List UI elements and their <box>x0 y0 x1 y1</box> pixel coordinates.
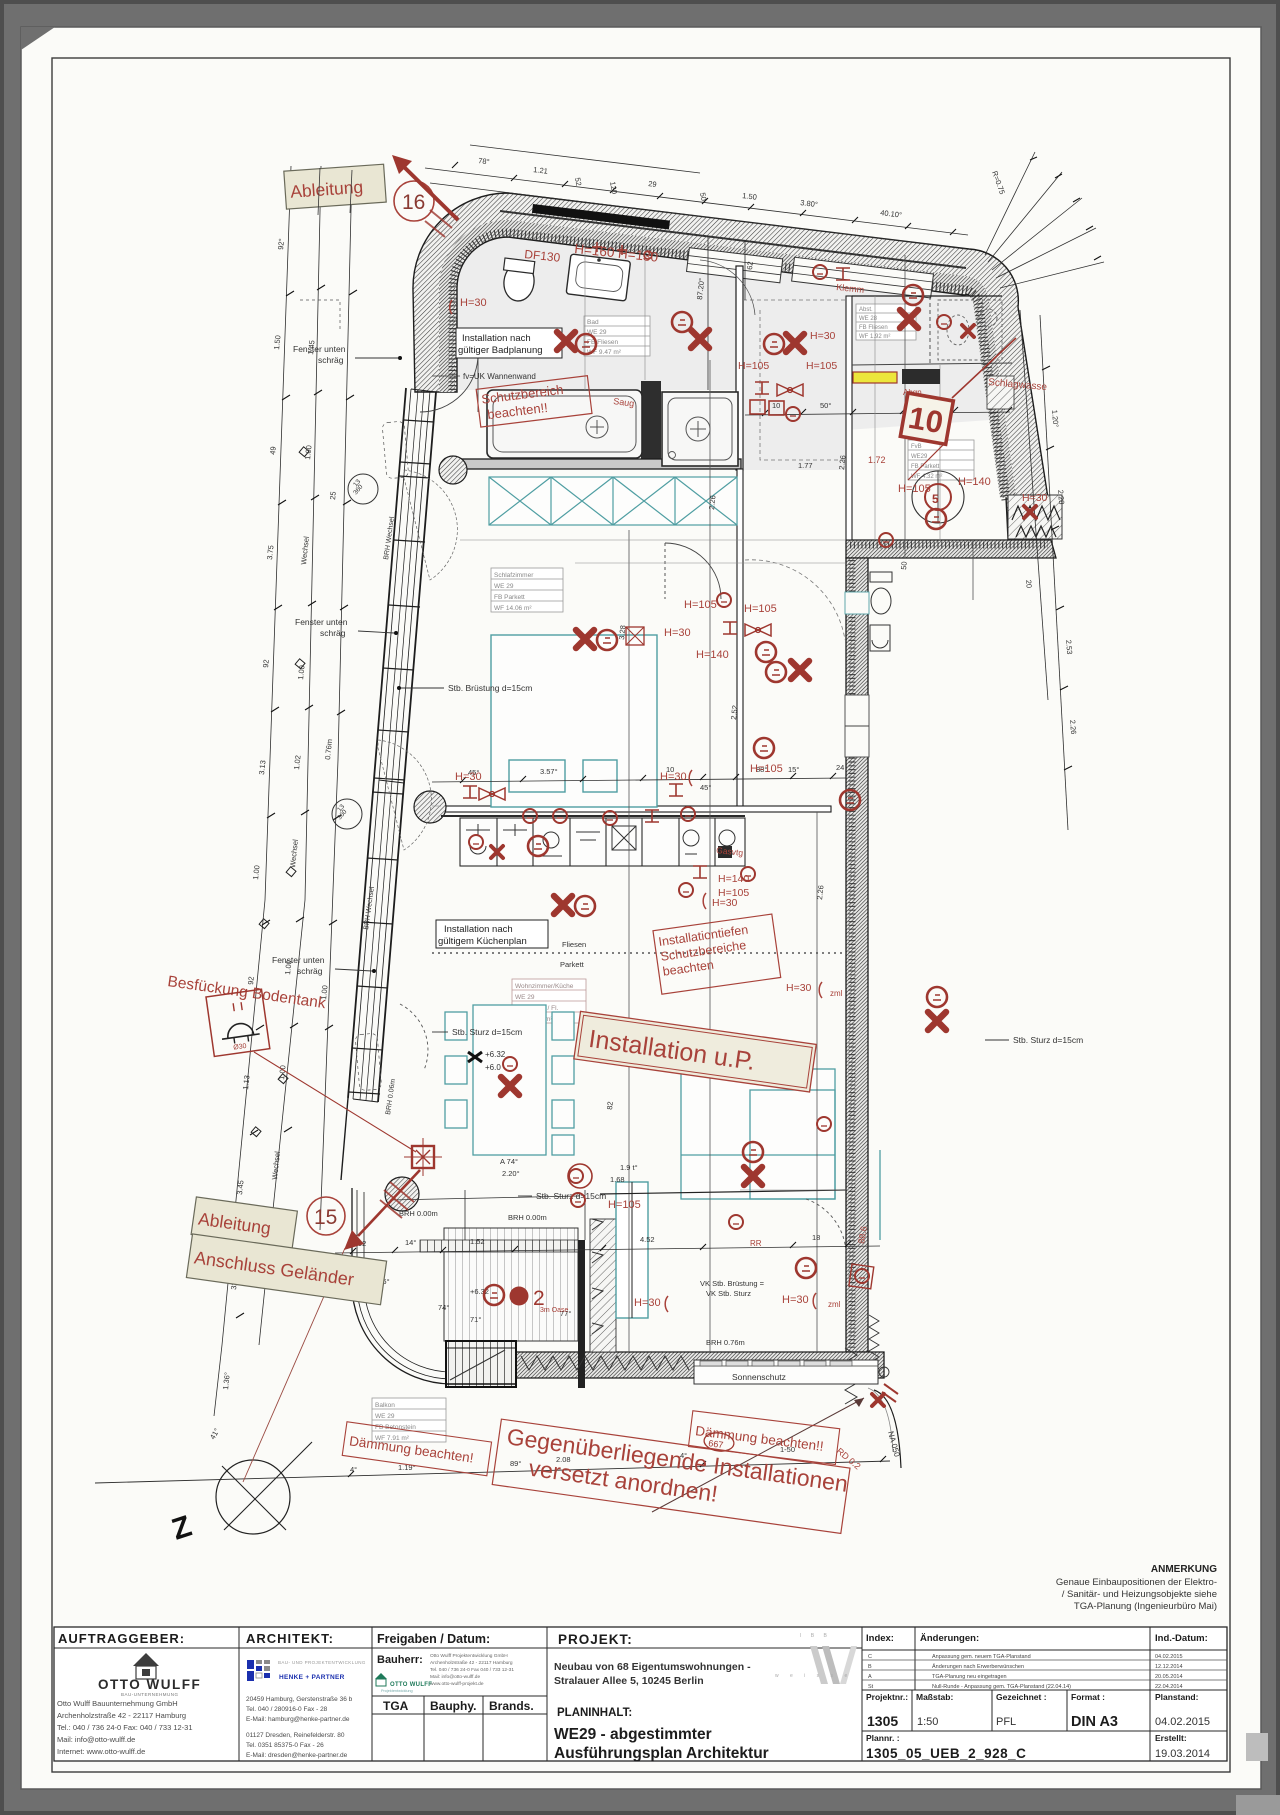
svg-text:20459 Hamburg, Gerstenstraße 3: 20459 Hamburg, Gerstenstraße 36 b <box>246 1696 353 1703</box>
svg-text:78°: 78° <box>478 156 490 166</box>
svg-text:Bauherr:: Bauherr: <box>377 1654 423 1666</box>
svg-text:1.21: 1.21 <box>533 165 549 176</box>
svg-text:2.28: 2.28 <box>1056 489 1066 504</box>
svg-text:H=105: H=105 <box>898 483 931 495</box>
svg-text:1.50: 1.50 <box>272 335 282 350</box>
svg-text:3.45: 3.45 <box>235 1180 245 1195</box>
svg-text:Neubau von 68 Eigentumswohnung: Neubau von 68 Eigentumswohnungen - <box>554 1661 751 1673</box>
svg-text:Balkon: Balkon <box>375 1402 395 1409</box>
svg-text:FB Fliesen: FB Fliesen <box>587 339 618 346</box>
svg-text:1:50: 1:50 <box>917 1716 938 1728</box>
svg-text:24: 24 <box>836 763 844 772</box>
svg-text:Planstand:: Planstand: <box>1155 1692 1199 1702</box>
svg-text:PROJEKT:: PROJEKT: <box>558 1632 633 1647</box>
svg-text:1.68: 1.68 <box>610 1175 625 1184</box>
svg-text:ARCHITEKT:: ARCHITEKT: <box>246 1631 334 1646</box>
svg-text:BAU-UNTERNEHMUNG: BAU-UNTERNEHMUNG <box>121 1692 179 1697</box>
svg-text:gültigem Küchenplan: gültigem Küchenplan <box>438 936 527 947</box>
svg-text:H=105: H=105 <box>684 599 717 611</box>
svg-text:TGA-Planung neu eingetragen: TGA-Planung neu eingetragen <box>932 1674 1007 1680</box>
svg-text:H=30: H=30 <box>782 1294 809 1306</box>
svg-text:Index:: Index: <box>866 1633 894 1644</box>
svg-text:Maßstab:: Maßstab: <box>916 1692 953 1702</box>
svg-text:1.45: 1.45 <box>306 340 316 355</box>
svg-text:Erstellt:: Erstellt: <box>1155 1733 1187 1743</box>
svg-text:DIN A3: DIN A3 <box>1071 1714 1118 1730</box>
svg-text:WE29 - abgestimmter: WE29 - abgestimmter <box>554 1726 712 1743</box>
svg-text:H=30: H=30 <box>712 897 738 909</box>
svg-text:RR: RR <box>750 1239 762 1248</box>
svg-text:HENKE + PARTNER: HENKE + PARTNER <box>279 1674 345 1681</box>
svg-text:VK Stb. Sturz: VK Stb. Sturz <box>706 1289 751 1298</box>
svg-text:gültiger Badplanung: gültiger Badplanung <box>458 345 543 356</box>
svg-text:zml: zml <box>830 989 843 998</box>
svg-text:Änderungen:: Änderungen: <box>920 1633 979 1644</box>
svg-text:29: 29 <box>648 179 657 189</box>
svg-text:I B B: I B B <box>800 1633 831 1639</box>
svg-text:Schlafzimmer: Schlafzimmer <box>494 572 534 579</box>
svg-text:Ind.-Datum:: Ind.-Datum: <box>1155 1633 1208 1644</box>
svg-text:10: 10 <box>772 401 780 410</box>
svg-text:OTTO WULFF: OTTO WULFF <box>98 1677 201 1692</box>
svg-text:w e i s s e: w e i s s e <box>775 1673 852 1679</box>
svg-text:10: 10 <box>906 400 946 440</box>
svg-text:15°: 15° <box>788 765 799 774</box>
svg-text:Tel. 0351 85375-0 Fax - 26: Tel. 0351 85375-0 Fax - 26 <box>246 1742 324 1749</box>
svg-text:FB Fliesen: FB Fliesen <box>859 325 888 331</box>
svg-text:50°: 50° <box>820 401 831 410</box>
svg-text:E-Mail: hamburg@henke-partner.: E-Mail: hamburg@henke-partner.de <box>246 1716 350 1723</box>
svg-text:2.26: 2.26 <box>1068 719 1078 734</box>
svg-text:+6.32: +6.32 <box>485 1050 506 1059</box>
svg-text:3.57°: 3.57° <box>540 767 558 776</box>
svg-text:Sonnenschutz: Sonnenschutz <box>732 1372 786 1382</box>
svg-text:52: 52 <box>573 177 583 187</box>
svg-text:Tel. 040 / 280916-0 Fax - 28: Tel. 040 / 280916-0 Fax - 28 <box>246 1706 328 1713</box>
svg-text:Genaue Einbaupositionen der El: Genaue Einbaupositionen der Elektro- <box>1056 1577 1217 1588</box>
svg-text:25: 25 <box>328 491 338 500</box>
svg-text:62: 62 <box>745 261 755 270</box>
svg-text:1305: 1305 <box>867 1713 898 1729</box>
svg-text:H=105: H=105 <box>750 763 783 775</box>
svg-text:3.75: 3.75 <box>265 545 275 560</box>
svg-text:Otto Wulff Bauunternehmung Gmb: Otto Wulff Bauunternehmung GmbH <box>57 1699 178 1708</box>
svg-text:+6.0: +6.0 <box>485 1063 501 1072</box>
svg-text:Mail: info@otto-wulff.de: Mail: info@otto-wulff.de <box>57 1735 135 1744</box>
svg-text:20.05.2014: 20.05.2014 <box>1155 1674 1183 1680</box>
svg-text:H=30: H=30 <box>786 982 812 994</box>
svg-text:H=105: H=105 <box>608 1199 641 1211</box>
svg-text:Archenholzstraße 42 - 22117: Archenholzstraße 42 - 22117 Hamburg <box>57 1711 186 1720</box>
svg-text:PLANINHALT:: PLANINHALT: <box>557 1707 632 1719</box>
svg-text:H=105: H=105 <box>738 360 769 372</box>
svg-text:schräg: schräg <box>318 355 344 365</box>
svg-text:04.02.2015: 04.02.2015 <box>1155 1654 1183 1660</box>
svg-text:04.02.2015: 04.02.2015 <box>1155 1716 1210 1728</box>
svg-text:Tel. 040 / 736 24-0 Fax 040 /: Tel. 040 / 736 24-0 Fax 040 / 733 12-31 <box>430 1667 514 1673</box>
svg-text:WE 29: WE 29 <box>494 583 514 590</box>
svg-text:5: 5 <box>932 492 939 506</box>
svg-text:St: St <box>868 1684 874 1690</box>
svg-text:Stb. Sturz d=15cm: Stb. Sturz d=15cm <box>452 1027 522 1037</box>
svg-text:15: 15 <box>314 1206 337 1229</box>
svg-text:BRH 0.76m: BRH 0.76m <box>706 1338 745 1347</box>
svg-text:50: 50 <box>698 192 708 202</box>
svg-text:E-Mail: dresden@henke-partner.: E-Mail: dresden@henke-partner.de <box>246 1752 348 1759</box>
svg-text:H=105: H=105 <box>806 360 837 372</box>
svg-text:BRH 0.00m: BRH 0.00m <box>508 1213 547 1222</box>
svg-text:2.26: 2.26 <box>837 455 847 470</box>
svg-text:1.13: 1.13 <box>241 1075 251 1090</box>
svg-text:H=30: H=30 <box>634 1297 661 1309</box>
svg-text:01127 Dresden, Reinefelderstr.: 01127 Dresden, Reinefelderstr. 80 <box>246 1732 345 1739</box>
svg-text:1.00: 1.00 <box>283 960 293 975</box>
svg-text:82: 82 <box>605 1101 615 1110</box>
svg-text:1.02: 1.02 <box>292 755 302 770</box>
svg-text:Abst.: Abst. <box>859 307 873 313</box>
svg-text:Mail: info@otto-wulff.de: Mail: info@otto-wulff.de <box>430 1674 480 1680</box>
svg-text:TGA: TGA <box>383 1699 409 1713</box>
svg-text:1.9 t°: 1.9 t° <box>620 1163 638 1172</box>
svg-text:Gezeichnet :: Gezeichnet : <box>996 1692 1047 1702</box>
svg-text:1.50: 1.50 <box>742 191 758 202</box>
svg-text:BRH 0.00m: BRH 0.00m <box>399 1209 438 1218</box>
svg-text:Ausführungsplan Architektur: Ausführungsplan Architektur <box>554 1745 769 1762</box>
svg-text:H=30: H=30 <box>1022 492 1048 504</box>
svg-text:2.20°: 2.20° <box>502 1169 520 1178</box>
svg-text:Projektnr.:: Projektnr.: <box>866 1692 908 1702</box>
svg-text:H=30: H=30 <box>460 297 487 309</box>
svg-text:Fenster unten: Fenster unten <box>295 617 348 627</box>
svg-text:71°: 71° <box>470 1315 481 1324</box>
svg-text:Archenholzstraße 42 - 22117: Archenholzstraße 42 - 22117 Hamburg <box>430 1660 513 1666</box>
svg-text:schräg: schräg <box>297 966 323 976</box>
svg-text:Null-Runde - Anpassung gem. TG: Null-Runde - Anpassung gem. TGA-Planstan… <box>932 1684 1071 1690</box>
svg-text:H=140: H=140 <box>696 649 729 661</box>
svg-text:3.13: 3.13 <box>257 760 267 775</box>
svg-text:H=140: H=140 <box>718 873 749 885</box>
svg-text:Installation nach: Installation nach <box>462 333 531 344</box>
svg-text:1.20°: 1.20° <box>1050 409 1061 427</box>
svg-text:WF 14.06 m²: WF 14.06 m² <box>494 605 532 612</box>
svg-text:20: 20 <box>1024 579 1034 588</box>
svg-text:74°: 74° <box>438 1303 449 1312</box>
svg-text:Installation nach: Installation nach <box>444 924 513 935</box>
svg-text:BAU- UND PROJEKTENTWICKLUNG: BAU- UND PROJEKTENTWICKLUNG <box>278 1660 366 1665</box>
svg-text:49: 49 <box>268 446 278 455</box>
svg-text:2.52: 2.52 <box>729 705 739 720</box>
svg-text:Projektentwicklung: Projektentwicklung <box>381 1689 413 1693</box>
svg-text:2.26: 2.26 <box>707 495 717 510</box>
svg-text:Plannr. :: Plannr. : <box>866 1733 900 1743</box>
svg-text:C: C <box>868 1654 872 1660</box>
svg-text:H=30: H=30 <box>664 627 691 639</box>
svg-text:zml: zml <box>828 1300 841 1309</box>
svg-text:fv=UK Wannenwand: fv=UK Wannenwand <box>463 372 536 381</box>
svg-text:Änderungen nach Erwerberwünsch: Änderungen nach Erwerberwünschen <box>932 1663 1024 1670</box>
svg-text:H=140: H=140 <box>958 476 991 488</box>
svg-text:1.72: 1.72 <box>868 455 886 465</box>
svg-text:50: 50 <box>899 561 909 570</box>
svg-text:Freigaben / Datum:: Freigaben / Datum: <box>377 1632 490 1646</box>
svg-text:OTTO WULFF: OTTO WULFF <box>390 1682 432 1688</box>
svg-text:89°: 89° <box>510 1459 521 1468</box>
svg-text:22.04.2014: 22.04.2014 <box>1155 1684 1183 1690</box>
svg-text:WE 29: WE 29 <box>515 994 535 1001</box>
svg-text:H=30: H=30 <box>660 771 687 783</box>
svg-text:2.26: 2.26 <box>815 885 825 900</box>
svg-text:1305_05_UEB_2_928_C: 1305_05_UEB_2_928_C <box>866 1746 1026 1761</box>
svg-text:WE29: WE29 <box>911 454 928 460</box>
svg-text:A: A <box>868 1674 872 1680</box>
svg-text:PFL: PFL <box>996 1716 1016 1728</box>
svg-text:Stb. Brüstung d=15cm: Stb. Brüstung d=15cm <box>448 683 532 693</box>
svg-text:1.52: 1.52 <box>470 1237 485 1246</box>
svg-text:schräg: schräg <box>320 628 346 638</box>
svg-text:92: 92 <box>261 659 271 668</box>
svg-text:Stralauer Allee 5, 10245 Berli: Stralauer Allee 5, 10245 Berlin <box>554 1675 704 1687</box>
svg-text:4°: 4° <box>350 1465 357 1474</box>
svg-text:12.12.2014: 12.12.2014 <box>1155 1664 1183 1670</box>
svg-text:WE 29: WE 29 <box>375 1413 395 1420</box>
svg-text:FB Parkett: FB Parkett <box>494 594 525 601</box>
svg-text:A 74°: A 74° <box>500 1157 518 1166</box>
svg-text:Bad: Bad <box>587 319 599 326</box>
svg-text:ANMERKUNG: ANMERKUNG <box>1151 1564 1217 1575</box>
svg-text:Stb. Sturz d=15cm: Stb. Sturz d=15cm <box>1013 1035 1083 1045</box>
svg-text:/ Sanitär- und Heizungsobjekte: / Sanitär- und Heizungsobjekte siehe <box>1062 1589 1217 1600</box>
svg-text:Wohnzimmer/Küche: Wohnzimmer/Küche <box>515 983 574 990</box>
svg-text:Brands.: Brands. <box>489 1699 534 1713</box>
svg-text:FB Parkett: FB Parkett <box>911 464 940 470</box>
svg-text:WF 1.92 m²: WF 1.92 m² <box>859 334 890 340</box>
svg-text:Fliesen: Fliesen <box>562 940 586 949</box>
svg-text:1.00: 1.00 <box>251 865 261 880</box>
svg-text:92°: 92° <box>276 238 286 250</box>
svg-text:Anpassung gem. neuem TGA-Plans: Anpassung gem. neuem TGA-Planstand <box>932 1654 1031 1660</box>
svg-text:H=30: H=30 <box>455 771 482 783</box>
svg-text:Bauphy.: Bauphy. <box>430 1699 476 1713</box>
svg-text:FvB: FvB <box>911 444 922 450</box>
svg-text:Fenster unten: Fenster unten <box>293 344 346 354</box>
svg-text:18: 18 <box>812 1233 820 1242</box>
svg-text:1.36°: 1.36° <box>221 1372 232 1390</box>
svg-text:19.03.2014: 19.03.2014 <box>1155 1748 1210 1760</box>
svg-text:14°: 14° <box>405 1238 416 1247</box>
svg-text:3m Oase: 3m Oase <box>540 1307 569 1314</box>
svg-text:Tel.: 040 / 736 24-0 Fax: 040: Tel.: 040 / 736 24-0 Fax: 040 / 733 12-3… <box>57 1723 193 1732</box>
svg-text:H=30: H=30 <box>810 330 836 342</box>
svg-text:45°: 45° <box>700 783 711 792</box>
svg-text:VK Stb. Brüstung =: VK Stb. Brüstung = <box>700 1279 765 1288</box>
svg-text:TGA-Planung (Ingenieurbüro Mai: TGA-Planung (Ingenieurbüro Mai) <box>1074 1601 1217 1612</box>
svg-text:Otto Wulff Projektentwicklung: Otto Wulff Projektentwicklung GmbH <box>430 1653 508 1659</box>
svg-text:Internet: www.otto-wulff.de: Internet: www.otto-wulff.de <box>57 1747 145 1756</box>
svg-text:Format :: Format : <box>1071 1692 1105 1702</box>
svg-text:16: 16 <box>402 191 425 214</box>
svg-text:B: B <box>868 1664 872 1670</box>
svg-text:1.77: 1.77 <box>798 461 813 470</box>
svg-text:AUFTRAGGEBER:: AUFTRAGGEBER: <box>58 1631 185 1646</box>
svg-text:4.52: 4.52 <box>640 1235 655 1244</box>
svg-text:Parkett: Parkett <box>560 960 585 969</box>
svg-text:H=105: H=105 <box>744 603 777 615</box>
svg-text:FB Betonstein: FB Betonstein <box>375 1424 416 1431</box>
svg-text:2.53: 2.53 <box>1064 639 1074 654</box>
svg-text:www.otto-wulff-projekt.de: www.otto-wulff-projekt.de <box>430 1681 484 1687</box>
